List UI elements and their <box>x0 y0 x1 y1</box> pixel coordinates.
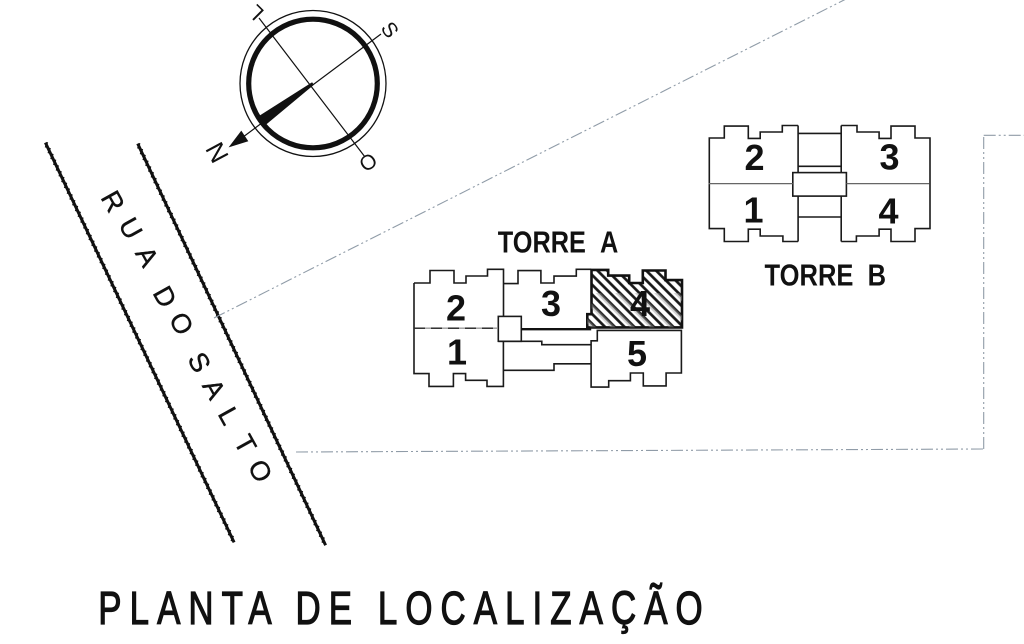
svg-text:2: 2 <box>744 137 764 178</box>
svg-text:2: 2 <box>446 288 466 329</box>
svg-text:PLANTA DE LOCALIZAÇÃO: PLANTA DE LOCALIZAÇÃO <box>98 582 710 634</box>
svg-text:1: 1 <box>447 332 467 373</box>
svg-text:5: 5 <box>627 333 647 374</box>
svg-text:4: 4 <box>878 191 898 232</box>
svg-text:3: 3 <box>541 283 561 324</box>
svg-text:4: 4 <box>630 283 650 324</box>
svg-text:TORRE A: TORRE A <box>498 224 619 259</box>
svg-text:TORRE B: TORRE B <box>765 257 887 292</box>
svg-text:1: 1 <box>743 190 763 231</box>
svg-text:3: 3 <box>879 137 899 178</box>
